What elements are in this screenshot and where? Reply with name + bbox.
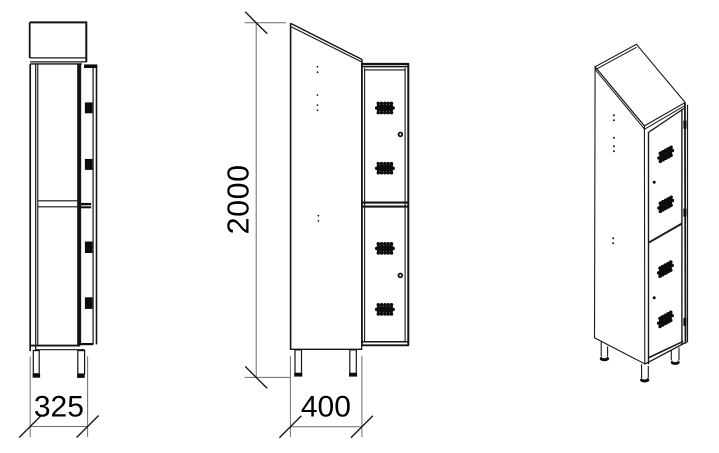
svg-text:325: 325 bbox=[34, 390, 84, 423]
svg-text:2000: 2000 bbox=[221, 164, 255, 234]
svg-text:400: 400 bbox=[301, 390, 351, 423]
